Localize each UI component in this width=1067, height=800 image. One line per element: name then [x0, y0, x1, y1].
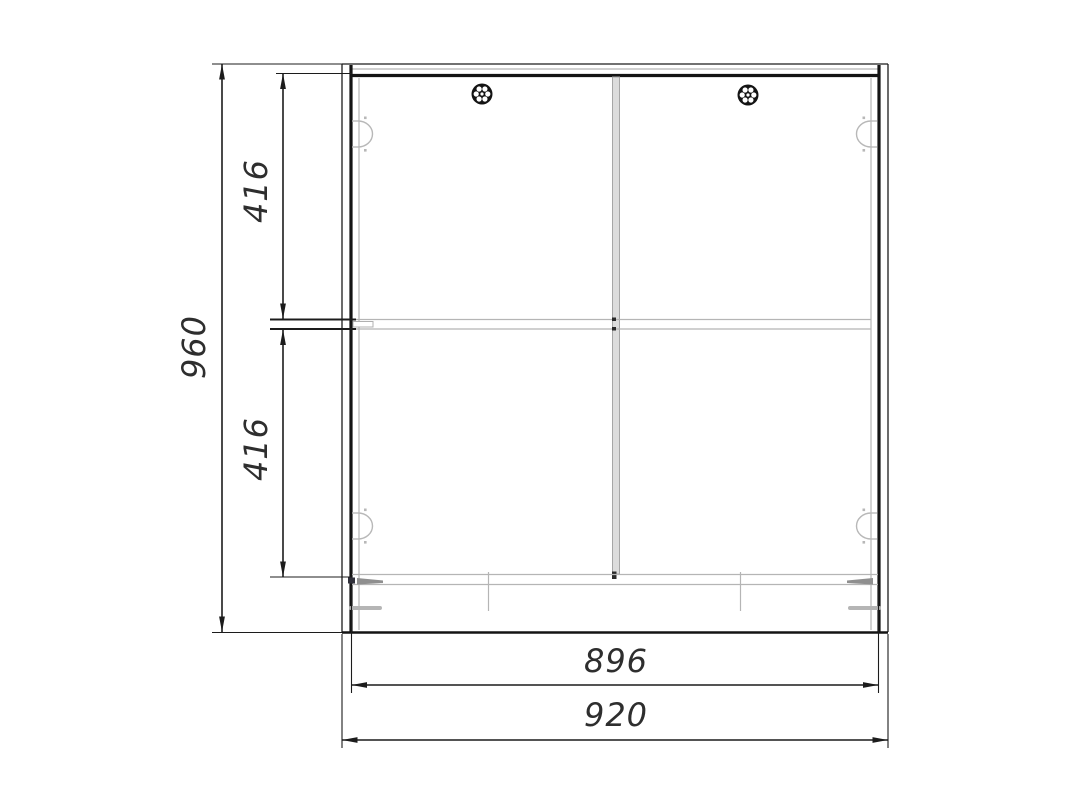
drawing-page: 960 416 416 896 920	[0, 0, 1067, 800]
left-side-panel	[342, 64, 359, 632]
dim-label-896: 896	[584, 642, 648, 680]
dim-label-920: 920	[584, 696, 648, 734]
dim-label-416-upper: 416	[237, 159, 275, 223]
cam-lock-bottom-left-icon	[352, 509, 373, 544]
dimension-lower-section: 416	[237, 330, 352, 578]
dimension-inner-width: 896	[352, 586, 879, 693]
left-leg-bracket	[357, 578, 383, 585]
middle-shelf	[270, 318, 871, 331]
dim-label-416-lower: 416	[237, 417, 275, 481]
top-panel	[342, 64, 888, 76]
cam-lock-top-right-icon	[857, 117, 878, 152]
cam-lock-top-left-icon	[352, 117, 373, 152]
drawing-canvas: 960 416 416 896 920	[0, 0, 1067, 800]
left-corner-fitting	[348, 578, 355, 584]
screw-head-rosette-left-icon	[472, 84, 493, 105]
right-side-panel	[871, 64, 888, 632]
dimension-overall-height: 960	[175, 64, 342, 633]
dimension-upper-section: 416	[237, 74, 352, 320]
dim-label-960: 960	[175, 315, 213, 379]
cam-lock-bottom-right-icon	[857, 509, 878, 544]
screw-head-rosette-right-icon	[738, 85, 759, 106]
right-leg-bracket	[847, 578, 873, 585]
